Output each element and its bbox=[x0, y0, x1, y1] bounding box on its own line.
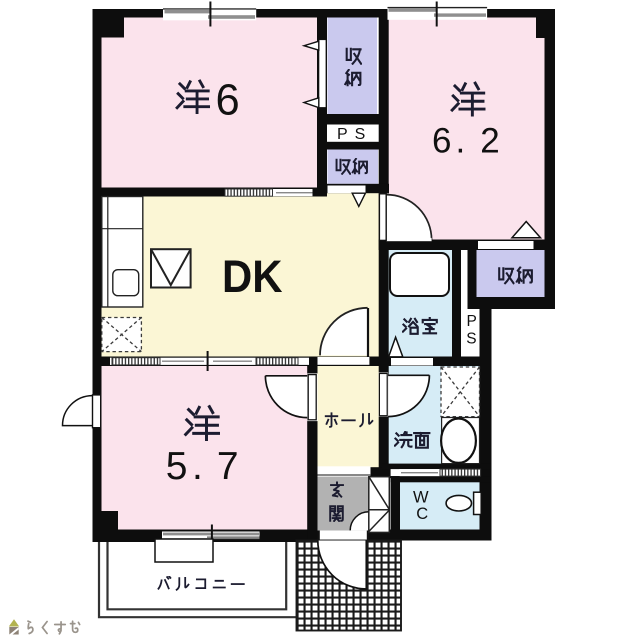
svg-text:PS: PS bbox=[337, 126, 372, 143]
svg-text:5.7: 5.7 bbox=[166, 445, 239, 488]
svg-text:DK: DK bbox=[222, 251, 283, 302]
svg-text:S: S bbox=[466, 331, 476, 348]
svg-text:6: 6 bbox=[216, 77, 240, 125]
svg-text:C: C bbox=[416, 505, 428, 523]
svg-text:W: W bbox=[413, 489, 429, 507]
svg-text:P: P bbox=[467, 313, 477, 330]
